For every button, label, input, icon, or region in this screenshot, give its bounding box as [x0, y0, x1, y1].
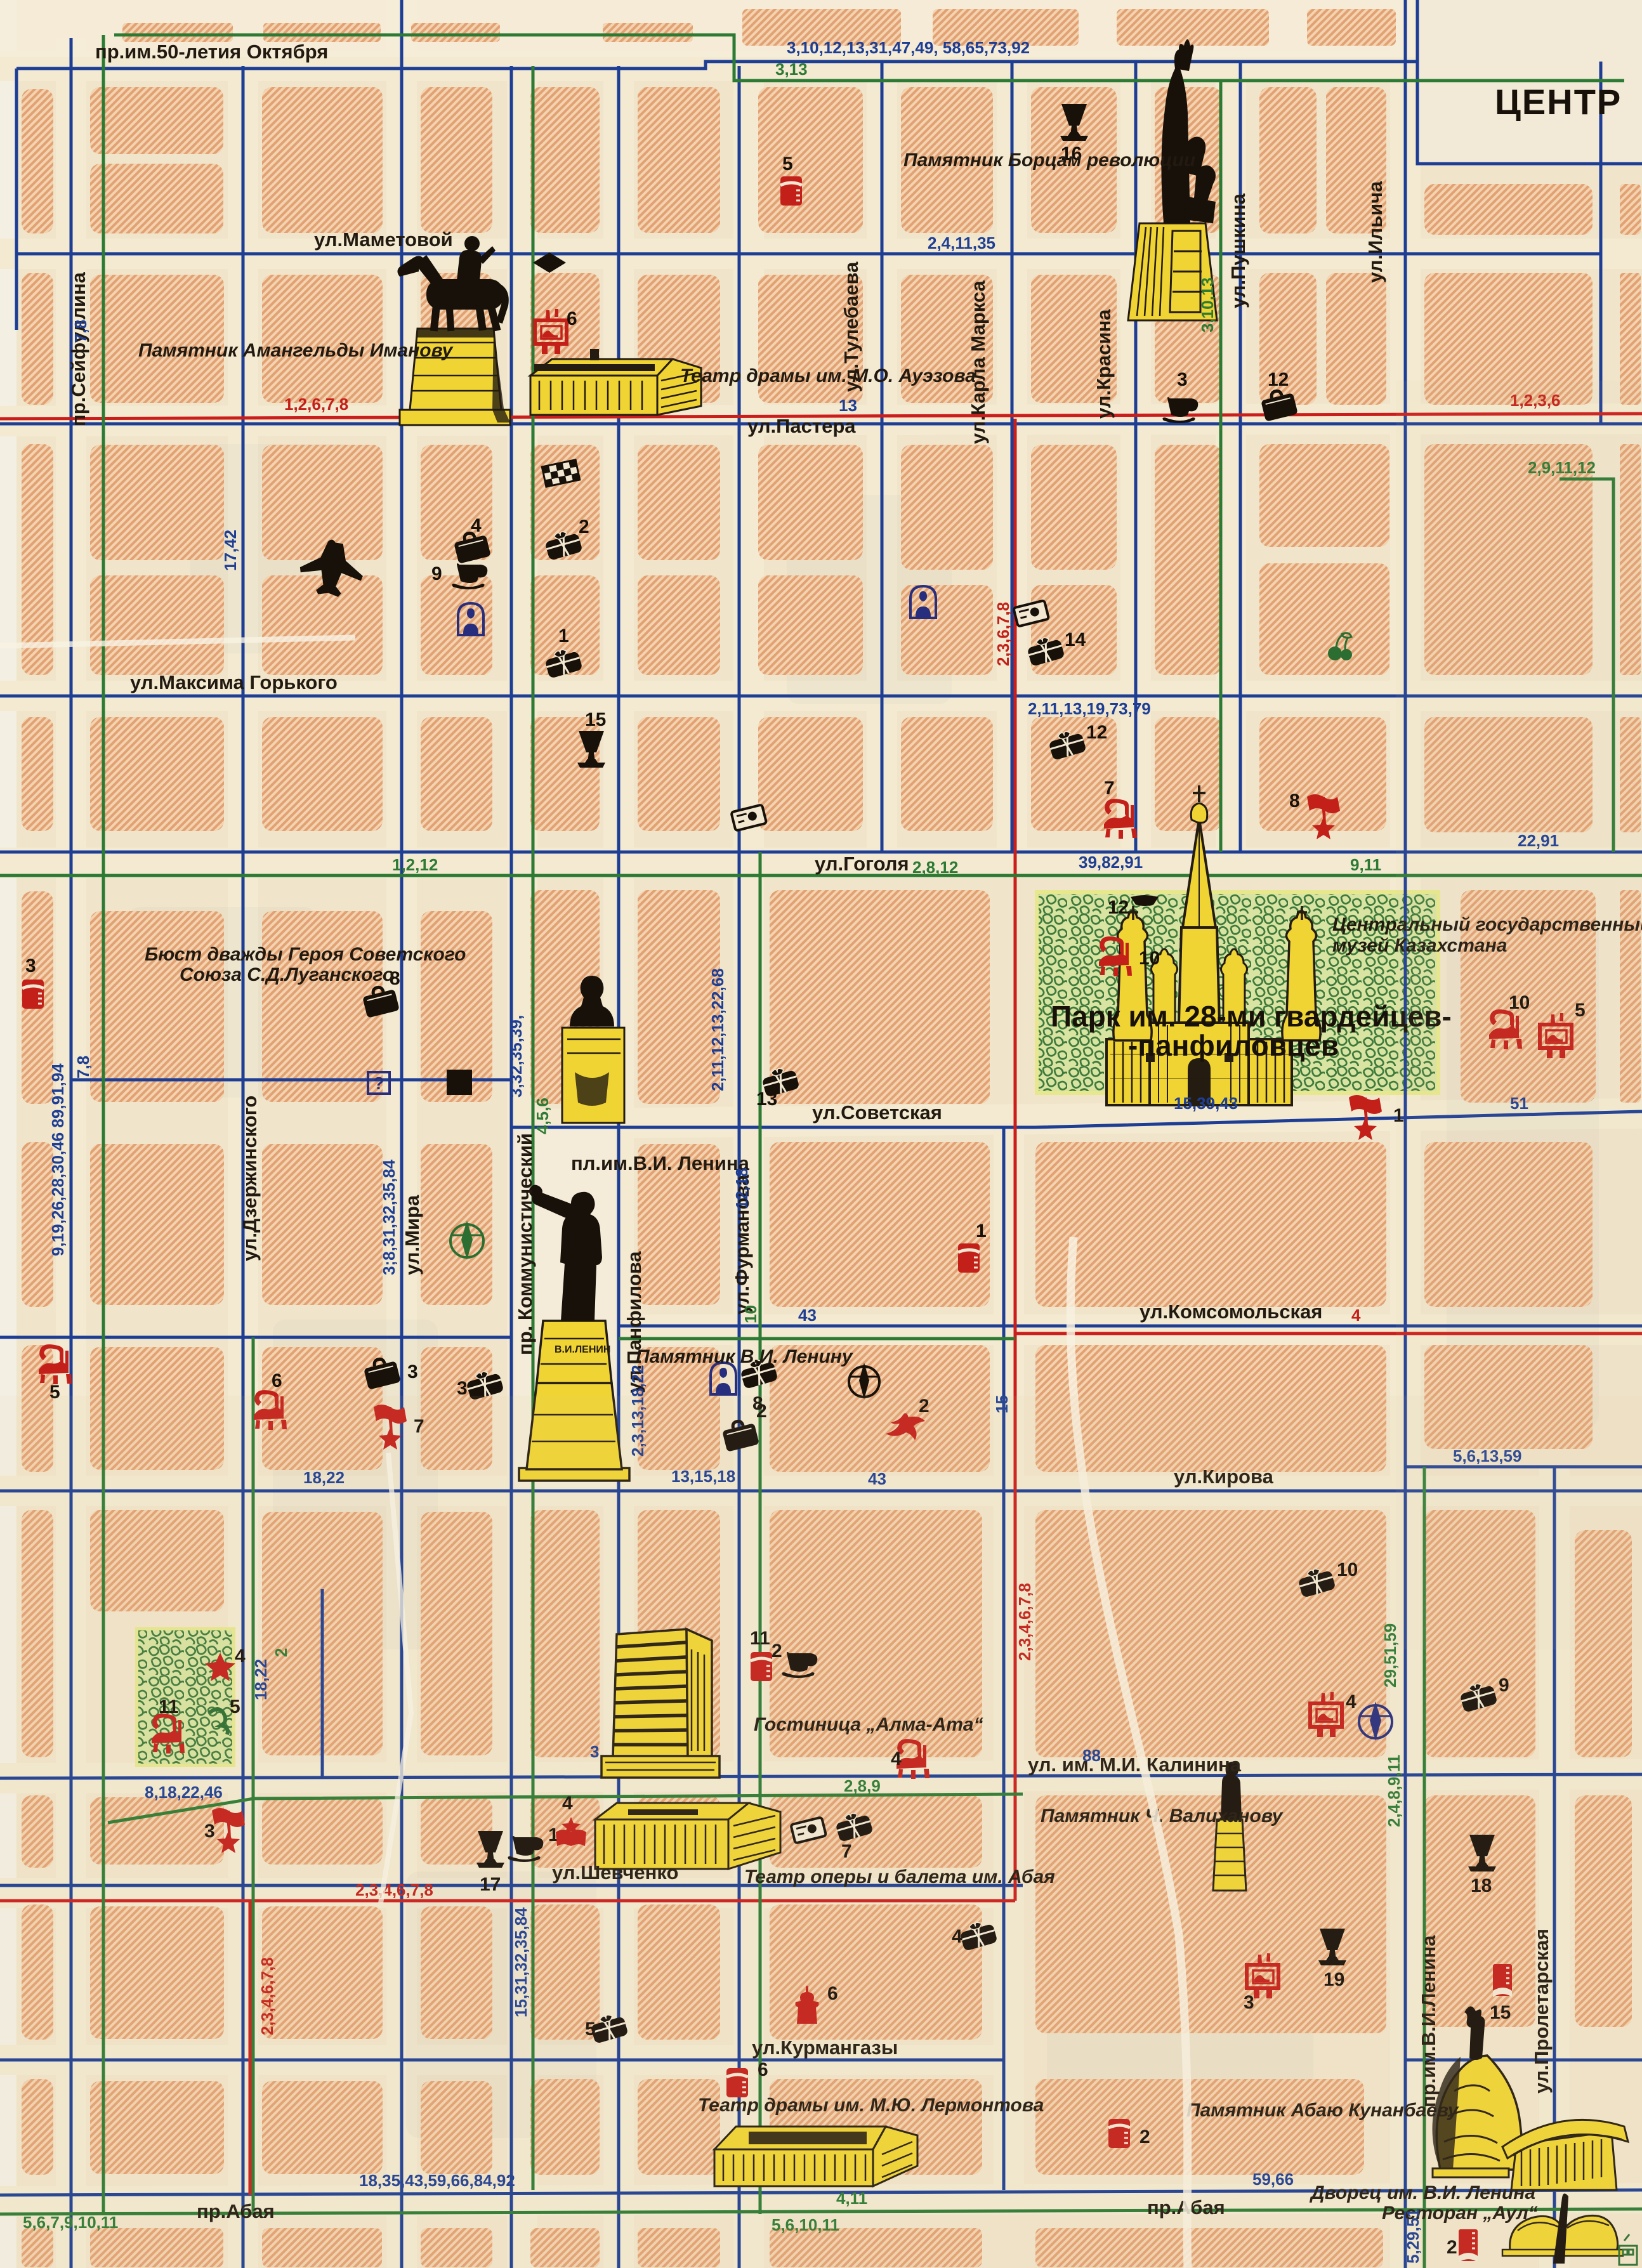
svg-text:17,42: 17,42 — [221, 530, 240, 571]
svg-text:ул.Советская: ул.Советская — [812, 1101, 942, 1124]
svg-text:13: 13 — [756, 1089, 777, 1110]
svg-text:6: 6 — [567, 308, 577, 329]
svg-text:Театр драмы им. М.О. Ауэзо: Театр драмы им. М.О. Ауэзова — [680, 365, 976, 386]
svg-text:пл.им.В.И. Ленина: пл.им.В.И. Ленина — [571, 1152, 750, 1174]
svg-text:12: 12 — [1086, 722, 1107, 743]
svg-text:Парк им. 28-ми гвардейцев-: Парк им. 28-ми гвардейцев- — [1051, 1000, 1452, 1033]
svg-text:10: 10 — [741, 1305, 760, 1323]
svg-text:9,19,26,28,30,46 89,91,94: 9,19,26,28,30,46 89,91,94 — [48, 1063, 67, 1256]
svg-text:ул.Красина: ул.Красина — [1093, 309, 1115, 419]
svg-text:7,8: 7,8 — [71, 320, 90, 343]
svg-text:-панфиловцев: -панфиловцев — [1128, 1029, 1339, 1062]
svg-text:3: 3 — [407, 1361, 418, 1382]
svg-text:Бюст дважды Героя Советског: Бюст дважды Героя Советского — [145, 944, 466, 965]
svg-text:1: 1 — [976, 1221, 987, 1242]
svg-text:ул.Максима Горького: ул.Максима Горького — [130, 671, 338, 693]
svg-text:7,8: 7,8 — [74, 1056, 93, 1078]
svg-text:пр.им.50-летия Октября: пр.им.50-летия Октября — [95, 41, 328, 63]
svg-text:9,11: 9,11 — [1350, 855, 1381, 874]
svg-text:ул.Ильича: ул.Ильича — [1364, 181, 1386, 283]
svg-text:3: 3 — [25, 955, 36, 976]
svg-text:3;8,31,32,35,84: 3;8,31,32,35,84 — [379, 1159, 398, 1275]
svg-text:15: 15 — [585, 709, 606, 730]
svg-text:6: 6 — [272, 1370, 282, 1391]
svg-text:9: 9 — [431, 563, 442, 584]
svg-text:7: 7 — [1104, 778, 1115, 799]
svg-text:ул.Пушкина: ул.Пушкина — [1227, 193, 1249, 308]
svg-text:Союза С.Д.Луганского: Союза С.Д.Луганского — [180, 964, 394, 985]
svg-text:2,3,6,7,8: 2,3,6,7,8 — [994, 602, 1013, 666]
svg-text:10: 10 — [1139, 948, 1160, 969]
svg-text:12: 12 — [1268, 369, 1289, 390]
svg-text:Памятник Борцам революции: Памятник Борцам революции — [903, 150, 1195, 171]
svg-text:Памятник В.И. Ленину: Памятник В.И. Ленину — [636, 1346, 853, 1367]
svg-text:3,32,35,39,: 3,32,35,39, — [506, 1015, 525, 1098]
svg-text:12,18: 12,18 — [732, 1168, 751, 1209]
svg-text:13: 13 — [839, 396, 857, 415]
svg-text:ул.Гоголя: ул.Гоголя — [815, 853, 909, 875]
svg-text:ул.Дзержинского: ул.Дзержинского — [239, 1096, 261, 1261]
svg-text:ул.Мира: ул.Мира — [401, 1195, 423, 1275]
svg-text:4: 4 — [471, 515, 482, 536]
svg-text:3: 3 — [1177, 369, 1188, 390]
svg-text:пр. Коммунистический: пр. Коммунистический — [514, 1133, 536, 1355]
svg-text:пр.Сейфуллина: пр.Сейфуллина — [67, 272, 89, 426]
svg-text:2,8,12: 2,8,12 — [912, 858, 958, 877]
svg-text:14: 14 — [1065, 629, 1086, 650]
svg-text:ул.Маметовой: ул.Маметовой — [314, 228, 453, 251]
svg-text:8: 8 — [1289, 790, 1300, 811]
svg-text:2,11,12,13,22,68: 2,11,12,13,22,68 — [708, 968, 727, 1091]
svg-text:15,39,43: 15,39,43 — [1174, 1094, 1238, 1113]
svg-text:2,4,11,35: 2,4,11,35 — [928, 233, 995, 252]
svg-text:43: 43 — [798, 1306, 817, 1325]
svg-text:5: 5 — [782, 154, 793, 174]
svg-text:4: 4 — [1351, 1306, 1361, 1325]
svg-text:1: 1 — [558, 626, 569, 646]
svg-text:Памятник Амангельды Иманову: Памятник Амангельды Иманову — [138, 340, 454, 361]
svg-text:1,2,6,7,8: 1,2,6,7,8 — [284, 395, 348, 414]
svg-text:2: 2 — [579, 516, 589, 537]
svg-text:4,5,6: 4,5,6 — [533, 1098, 552, 1134]
svg-text:12: 12 — [1108, 897, 1129, 918]
svg-text:3,13: 3,13 — [775, 60, 808, 79]
svg-text:В.И.ЛЕНИН: В.И.ЛЕНИН — [555, 1344, 610, 1355]
svg-text:3,10,13: 3,10,13 — [1198, 277, 1217, 332]
svg-text:3,10,12,13,31,47,49, 58,65,73: 3,10,12,13,31,47,49, 58,65,73,92 — [787, 38, 1030, 57]
svg-text:ул.Комсомольская: ул.Комсомольская — [1140, 1301, 1322, 1323]
svg-text:39,82,91: 39,82,91 — [1079, 853, 1143, 872]
svg-text:ул.Пастера: ул.Пастера — [747, 415, 856, 437]
svg-text:ул.Карла Маркса: ул.Карла Маркса — [967, 280, 989, 444]
svg-text:1,2,12: 1,2,12 — [392, 855, 438, 874]
svg-text:ЦЕНТР: ЦЕНТР — [1495, 82, 1622, 122]
svg-text:2,11,13,19,73,79: 2,11,13,19,73,79 — [1028, 699, 1151, 718]
